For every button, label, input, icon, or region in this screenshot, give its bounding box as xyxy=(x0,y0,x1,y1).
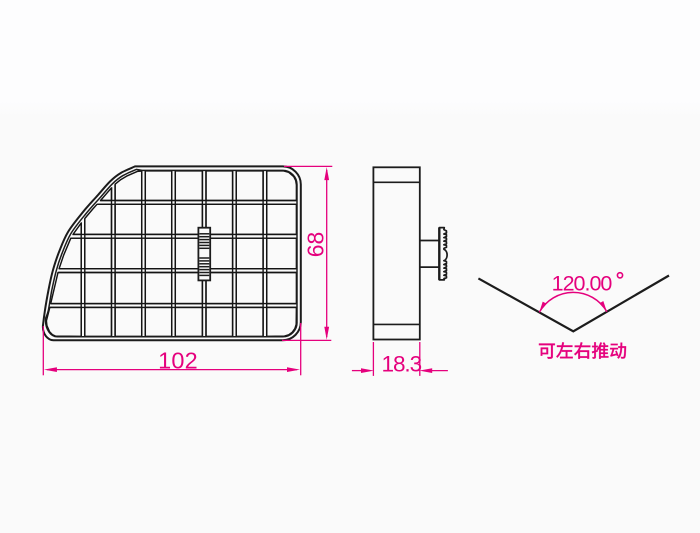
svg-text:68: 68 xyxy=(302,232,328,258)
svg-text:18.3: 18.3 xyxy=(382,351,422,376)
svg-text:102: 102 xyxy=(158,347,198,373)
svg-text:120.00: 120.00 xyxy=(552,272,613,296)
